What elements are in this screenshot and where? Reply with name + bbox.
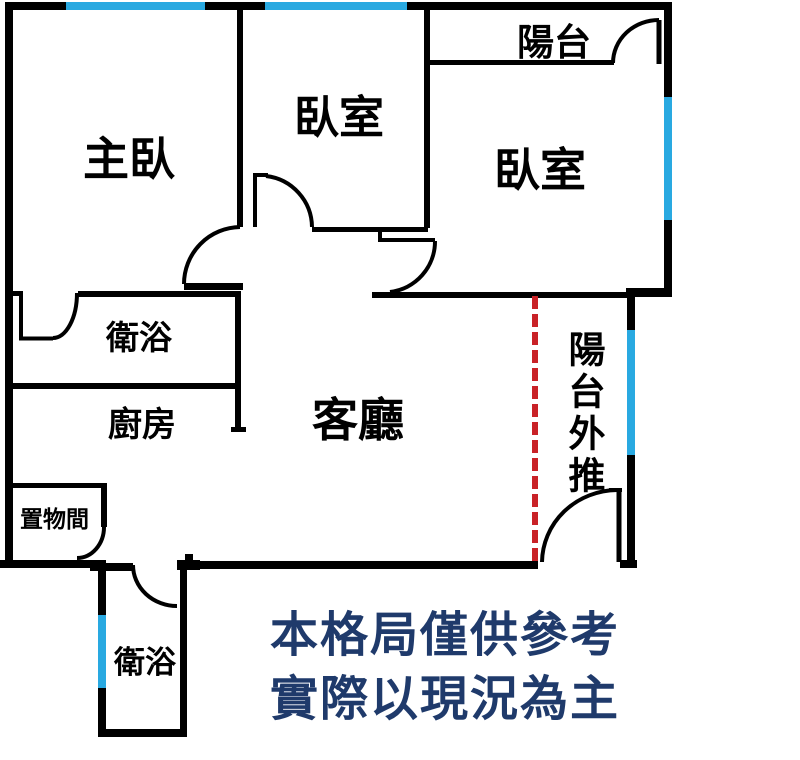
floor-plan-canvas: 主臥 臥室 臥室 陽台 衛浴 廚房 客廳 置物間 衛浴 陽台外推 本格局僅供參考… <box>0 0 800 760</box>
disclaimer-line-2: 實際以現況為主 <box>270 668 620 732</box>
room-label-bedroom-mid: 臥室 <box>294 95 384 140</box>
window-extension-right <box>627 330 635 455</box>
door-arc <box>542 490 617 562</box>
room-label-balcony: 陽台 <box>517 24 591 61</box>
disclaimer-text: 本格局僅供參考 實際以現況為主 <box>270 604 620 732</box>
room-label-bedroom-right: 臥室 <box>494 147 586 193</box>
door-arc <box>613 20 659 63</box>
door-arc <box>133 565 177 606</box>
door-arc <box>184 227 240 284</box>
window-bedroom-right <box>664 97 672 220</box>
room-label-living-room: 客廳 <box>312 397 404 443</box>
room-label-kitchen: 廚房 <box>108 408 176 442</box>
disclaimer-line-1: 本格局僅供參考 <box>270 604 620 668</box>
window-bedroom-top <box>265 2 407 10</box>
window-master-top <box>66 2 205 10</box>
door-arc <box>266 176 312 227</box>
room-label-bathroom-lower: 衛浴 <box>114 647 176 678</box>
door-arc <box>53 293 77 338</box>
door-arc <box>390 241 435 292</box>
window-bath-lower <box>98 615 106 688</box>
room-label-storage: 置物間 <box>20 508 89 531</box>
room-label-balcony-extension: 陽台外推 <box>565 330 602 498</box>
room-label-master-bedroom: 主臥 <box>83 136 175 182</box>
room-label-bathroom-upper: 衛浴 <box>106 321 172 354</box>
